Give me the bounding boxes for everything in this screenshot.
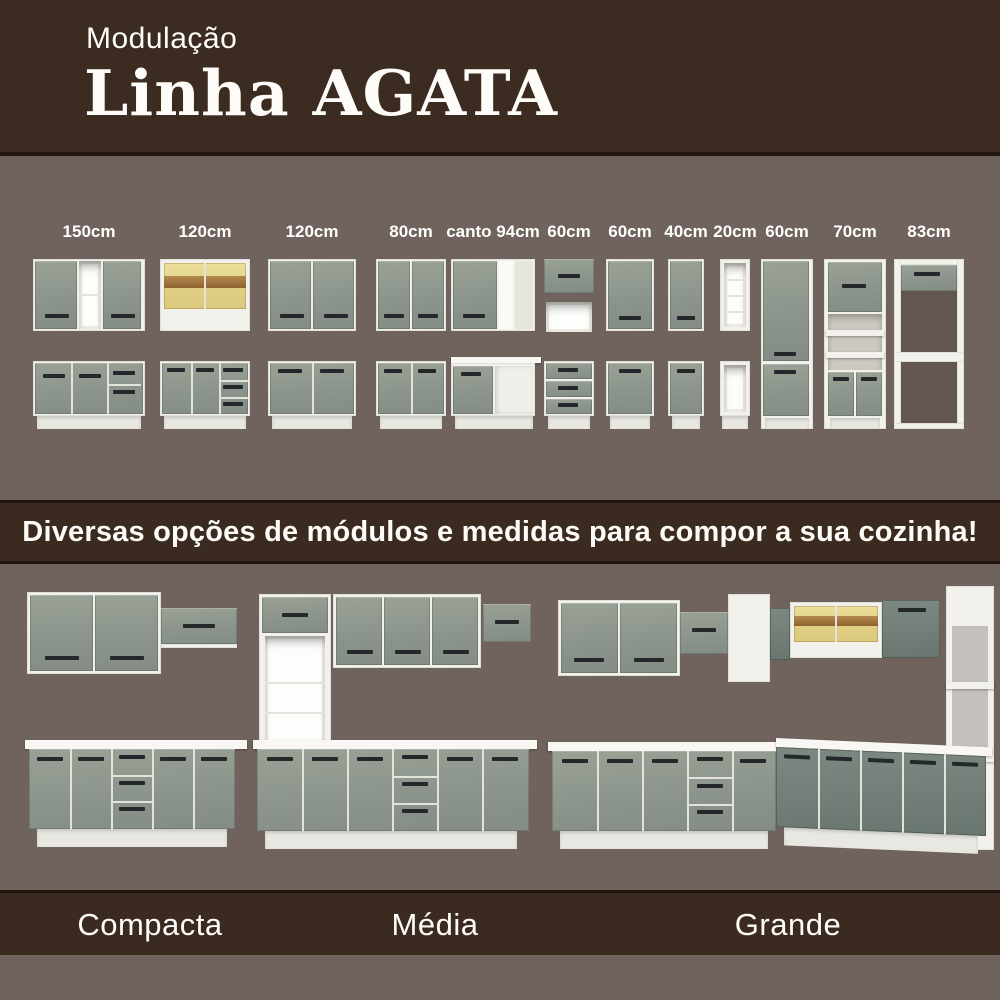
module-size-label: 70cm [833, 222, 876, 242]
l-return-illustration [776, 738, 992, 877]
kitchens-section [0, 564, 1000, 890]
kitchen-labels-bar: Compacta Média Grande [0, 890, 1000, 955]
module-size-label: 80cm [389, 222, 432, 242]
tagline-band: Diversas opções de módulos e medidas par… [0, 500, 1000, 564]
module-col-120cm: 120cm [268, 156, 356, 500]
module-size-label: 120cm [286, 222, 339, 242]
module-col-60cm-niche: 60cm [544, 156, 594, 500]
tagline-text: Diversas opções de módulos e medidas par… [22, 516, 977, 549]
module-col-canto-94cm: canto 94cm [451, 156, 535, 500]
header-subtitle: Modulação [86, 22, 237, 56]
modules-section: 150cm [0, 156, 1000, 500]
module-col-70cm: 70cm [824, 156, 886, 500]
module-size-label: 60cm [608, 222, 651, 242]
header: Modulação Linha AGATA [0, 0, 1000, 152]
module-col-83cm: 83cm [894, 156, 964, 500]
module-size-label: 40cm [664, 222, 707, 242]
kitchen-grande-illustration [548, 564, 992, 874]
module-size-label: 20cm [713, 222, 756, 242]
flyer-canvas: Modulação Linha AGATA 150cm [0, 0, 1000, 1000]
module-col-60cm-tall: 60cm [761, 156, 813, 500]
header-title: Linha AGATA [84, 56, 558, 130]
module-size-label: 83cm [907, 222, 950, 242]
module-col-80cm: 80cm [376, 156, 446, 500]
module-size-label: 120cm [179, 222, 232, 242]
kitchen-label-grande: Grande [735, 907, 841, 943]
kitchen-label-compacta: Compacta [77, 907, 222, 943]
kitchen-label-media: Média [392, 907, 479, 943]
module-col-120cm-glass: 120cm [160, 156, 250, 500]
module-col-20cm: 20cm [720, 156, 750, 500]
kitchen-media-illustration [253, 564, 537, 864]
module-size-label: 150cm [63, 222, 116, 242]
module-size-label: 60cm [547, 222, 590, 242]
module-size-label: 60cm [765, 222, 808, 242]
module-col-40cm: 40cm [668, 156, 704, 500]
kitchen-compacta-illustration [25, 564, 247, 864]
module-col-150cm: 150cm [33, 156, 145, 500]
module-col-60cm: 60cm [606, 156, 654, 500]
module-size-label: canto 94cm [446, 222, 540, 242]
